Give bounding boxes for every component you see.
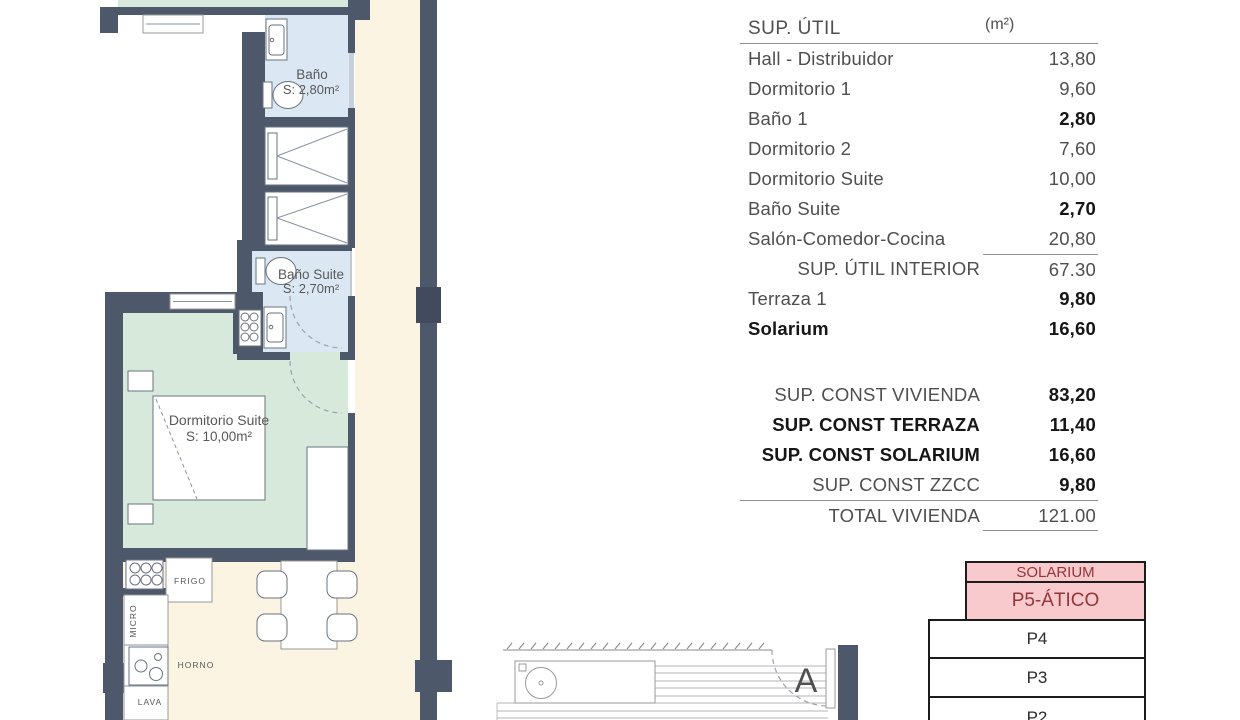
bano1-sink xyxy=(266,19,287,60)
micro-label: MICRO xyxy=(128,604,138,637)
table-row-summary: SUP. CONST TERRAZA 11,40 xyxy=(740,410,1098,440)
bano-suite-area: S: 2,70m² xyxy=(283,281,340,296)
row-label: Dormitorio Suite xyxy=(740,164,983,194)
window-bedroom xyxy=(170,294,235,309)
row-label: Solarium xyxy=(740,314,983,344)
stack-level-label: P5-ÁTICO xyxy=(1012,590,1100,612)
surface-table-unit: (m²) xyxy=(985,16,1014,34)
row-value: 9,60 xyxy=(983,74,1098,104)
washer-label: LAVA xyxy=(138,697,162,707)
row-value: 67.30 xyxy=(983,254,1098,284)
row-label: SUP. ÚTIL INTERIOR xyxy=(740,254,983,284)
table-row: Solarium 16,60 xyxy=(740,314,1098,344)
table-row: Dormitorio Suite 10,00 xyxy=(740,164,1098,194)
row-label: Salón-Comedor-Cocina xyxy=(740,224,983,254)
wardrobe-2 xyxy=(265,192,348,245)
table-row: Dormitorio 2 7,60 xyxy=(740,134,1098,164)
row-label: SUP. CONST TERRAZA xyxy=(740,410,983,440)
total-label: TOTAL VIVIENDA xyxy=(740,501,983,531)
bedroom-desk xyxy=(307,447,348,550)
table-row-summary: SUP. CONST VIVIENDA 83,20 xyxy=(740,380,1098,410)
table-row-summary: SUP. CONST SOLARIUM 16,60 xyxy=(740,440,1098,470)
fridge-label: FRIGO xyxy=(174,576,206,586)
row-label: SUP. CONST VIVIENDA xyxy=(740,380,983,410)
row-value: 20,80 xyxy=(983,224,1098,254)
dormitorio-suite-area: S: 10,00m² xyxy=(186,429,253,444)
railing-ticks xyxy=(507,643,764,649)
window-block-right xyxy=(416,287,441,323)
stack-level-label: P4 xyxy=(1027,629,1048,649)
table-row: Hall - Distribuidor 13,80 xyxy=(740,44,1098,74)
row-label: Baño Suite xyxy=(740,194,983,224)
stack-level-p4: P4 xyxy=(928,619,1146,659)
row-value: 9,80 xyxy=(983,284,1098,314)
terrace-door-leaf xyxy=(826,649,835,708)
cooktop xyxy=(129,647,168,685)
row-label: Dormitorio 1 xyxy=(740,74,983,104)
row-value: 7,60 xyxy=(983,134,1098,164)
corridor-window-strip xyxy=(349,53,354,108)
table-row: Dormitorio 1 9,60 xyxy=(740,74,1098,104)
suite-to-bedroom-door-gap xyxy=(290,352,340,360)
dormitorio1-floor-strip xyxy=(118,0,350,7)
stack-level-label: P3 xyxy=(1027,668,1048,688)
nightstand-1 xyxy=(128,371,153,391)
total-value: 121.00 xyxy=(983,501,1098,531)
row-label: SUP. CONST SOLARIUM xyxy=(740,440,983,470)
table-row: Baño 1 2,80 xyxy=(740,104,1098,134)
table-row: Baño Suite 2,70 xyxy=(740,194,1098,224)
stack-level-p3: P3 xyxy=(928,657,1146,698)
surface-table: SUP. ÚTIL (m²) Hall - Distribuidor 13,80… xyxy=(740,14,1098,531)
stack-level-label: SOLARIUM xyxy=(1016,564,1094,581)
window-top-left xyxy=(143,15,203,33)
row-value: 2,80 xyxy=(983,104,1098,134)
row-value: 16,60 xyxy=(983,314,1098,344)
chair xyxy=(257,614,287,641)
row-value: 16,60 xyxy=(983,440,1098,470)
stack-level-p5-atico: P5-ÁTICO xyxy=(965,581,1146,621)
surface-table-title: SUP. ÚTIL xyxy=(740,14,841,43)
section-marker-a: A xyxy=(795,662,818,700)
row-value: 9,80 xyxy=(983,470,1098,500)
row-label: SUP. CONST ZZCC xyxy=(740,470,983,500)
table-row-total: TOTAL VIVIENDA 121.00 xyxy=(740,500,1098,531)
row-label: Hall - Distribuidor xyxy=(740,44,983,74)
chair xyxy=(327,571,357,598)
windows xyxy=(143,15,235,309)
dormitorio-suite-label: Dormitorio Suite xyxy=(169,412,270,428)
terrace-counter xyxy=(515,661,655,703)
chair xyxy=(327,614,357,641)
pantry-unit xyxy=(126,560,163,589)
stack-level-p2: P2 xyxy=(928,696,1146,720)
bano1-area: S: 2,80m² xyxy=(283,82,340,97)
surface-table-header: SUP. ÚTIL (m²) xyxy=(740,14,1098,44)
row-value: 10,00 xyxy=(983,164,1098,194)
terrace-detail xyxy=(497,643,835,720)
installation-shaft xyxy=(239,310,261,346)
bano-suite-sink xyxy=(264,307,286,348)
row-value: 11,40 xyxy=(983,410,1098,440)
stack-level-solarium: SOLARIUM xyxy=(965,561,1146,583)
row-label: Dormitorio 2 xyxy=(740,134,983,164)
table-row: Terraza 1 9,80 xyxy=(740,284,1098,314)
row-label: Baño 1 xyxy=(740,104,983,134)
row-value: 2,70 xyxy=(983,194,1098,224)
stack-level-label: P2 xyxy=(1027,708,1048,720)
table-row-subtotal: SUP. ÚTIL INTERIOR 67.30 xyxy=(740,254,1098,284)
wardrobe-1 xyxy=(265,127,348,185)
bano1-label: Baño xyxy=(296,67,328,82)
row-value: 13,80 xyxy=(983,44,1098,74)
bano-suite-label: Baño Suite xyxy=(278,267,344,282)
nightstand-2 xyxy=(128,504,153,524)
oven-label: HORNO xyxy=(178,660,215,670)
table-row: Salón-Comedor-Cocina 20,80 xyxy=(740,224,1098,254)
table-gap xyxy=(740,344,1098,380)
plan-sheet: Baño S: 2,80m² Baño Suite S: 2,70m² Dorm… xyxy=(0,0,1240,720)
chair xyxy=(257,571,287,598)
table-row-summary: SUP. CONST ZZCC 9,80 xyxy=(740,470,1098,500)
row-label: Terraza 1 xyxy=(740,284,983,314)
row-value: 83,20 xyxy=(983,380,1098,410)
terrace-wall xyxy=(838,645,858,720)
